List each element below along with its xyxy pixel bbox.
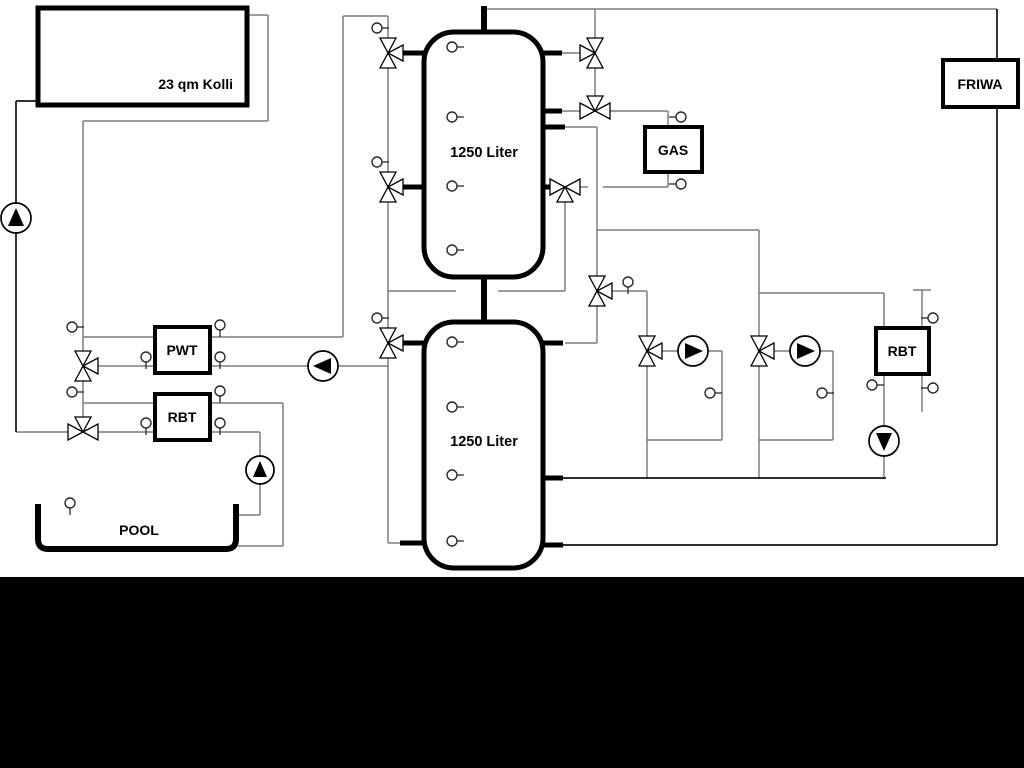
- friwa-label: FRIWA: [957, 76, 1002, 92]
- sensor-bulb: [447, 470, 457, 480]
- sensor-bulb: [867, 380, 877, 390]
- sensor-bulb: [141, 352, 151, 362]
- gas-label: GAS: [658, 142, 688, 158]
- pump: [1, 203, 31, 233]
- sensor-bulb: [67, 387, 77, 397]
- sensor-bulb: [215, 352, 225, 362]
- sensor-bulb: [623, 277, 633, 287]
- tank2-label: 1250 Liter: [450, 434, 518, 450]
- bottom-black-band: [0, 577, 1024, 768]
- sensor-bulb: [705, 388, 715, 398]
- sensor-bulb: [817, 388, 827, 398]
- sensor-bulb: [928, 383, 938, 393]
- sensor-bulb: [447, 337, 457, 347]
- collector-label: 23 qm Kolli: [158, 76, 233, 92]
- sensor-bulb: [215, 418, 225, 428]
- sensor-bulb: [215, 386, 225, 396]
- pump: [869, 426, 899, 456]
- sensor-bulb: [65, 498, 75, 508]
- rbt_right-label: RBT: [888, 343, 917, 359]
- sensor-bulb: [676, 112, 686, 122]
- pump: [308, 351, 338, 381]
- sensor-bulb: [447, 42, 457, 52]
- sensor-bulb: [67, 322, 77, 332]
- sensor-bulb: [447, 112, 457, 122]
- sensor-bulb: [372, 23, 382, 33]
- sensor-bulb: [215, 320, 225, 330]
- pump: [790, 336, 820, 366]
- pump: [246, 456, 274, 484]
- sensor-bulb: [141, 418, 151, 428]
- sensor-bulb: [372, 313, 382, 323]
- rbt_left-label: RBT: [168, 409, 197, 425]
- pwt-label: PWT: [166, 342, 198, 358]
- sensor-bulb: [372, 157, 382, 167]
- diagram-canvas: 23 qm Kolli1250 Liter1250 LiterGASFRIWAP…: [0, 0, 1024, 768]
- sensor-bulb: [447, 181, 457, 191]
- sensor-bulb: [676, 179, 686, 189]
- tank1-label: 1250 Liter: [450, 145, 518, 161]
- sensor-bulb: [447, 245, 457, 255]
- hydraulic-schematic-page: 23 qm Kolli1250 Liter1250 LiterGASFRIWAP…: [0, 0, 1024, 768]
- sensor-bulb: [447, 402, 457, 412]
- pump: [678, 336, 708, 366]
- sensor-bulb: [928, 313, 938, 323]
- sensor-bulb: [447, 536, 457, 546]
- pool-label: POOL: [119, 522, 159, 538]
